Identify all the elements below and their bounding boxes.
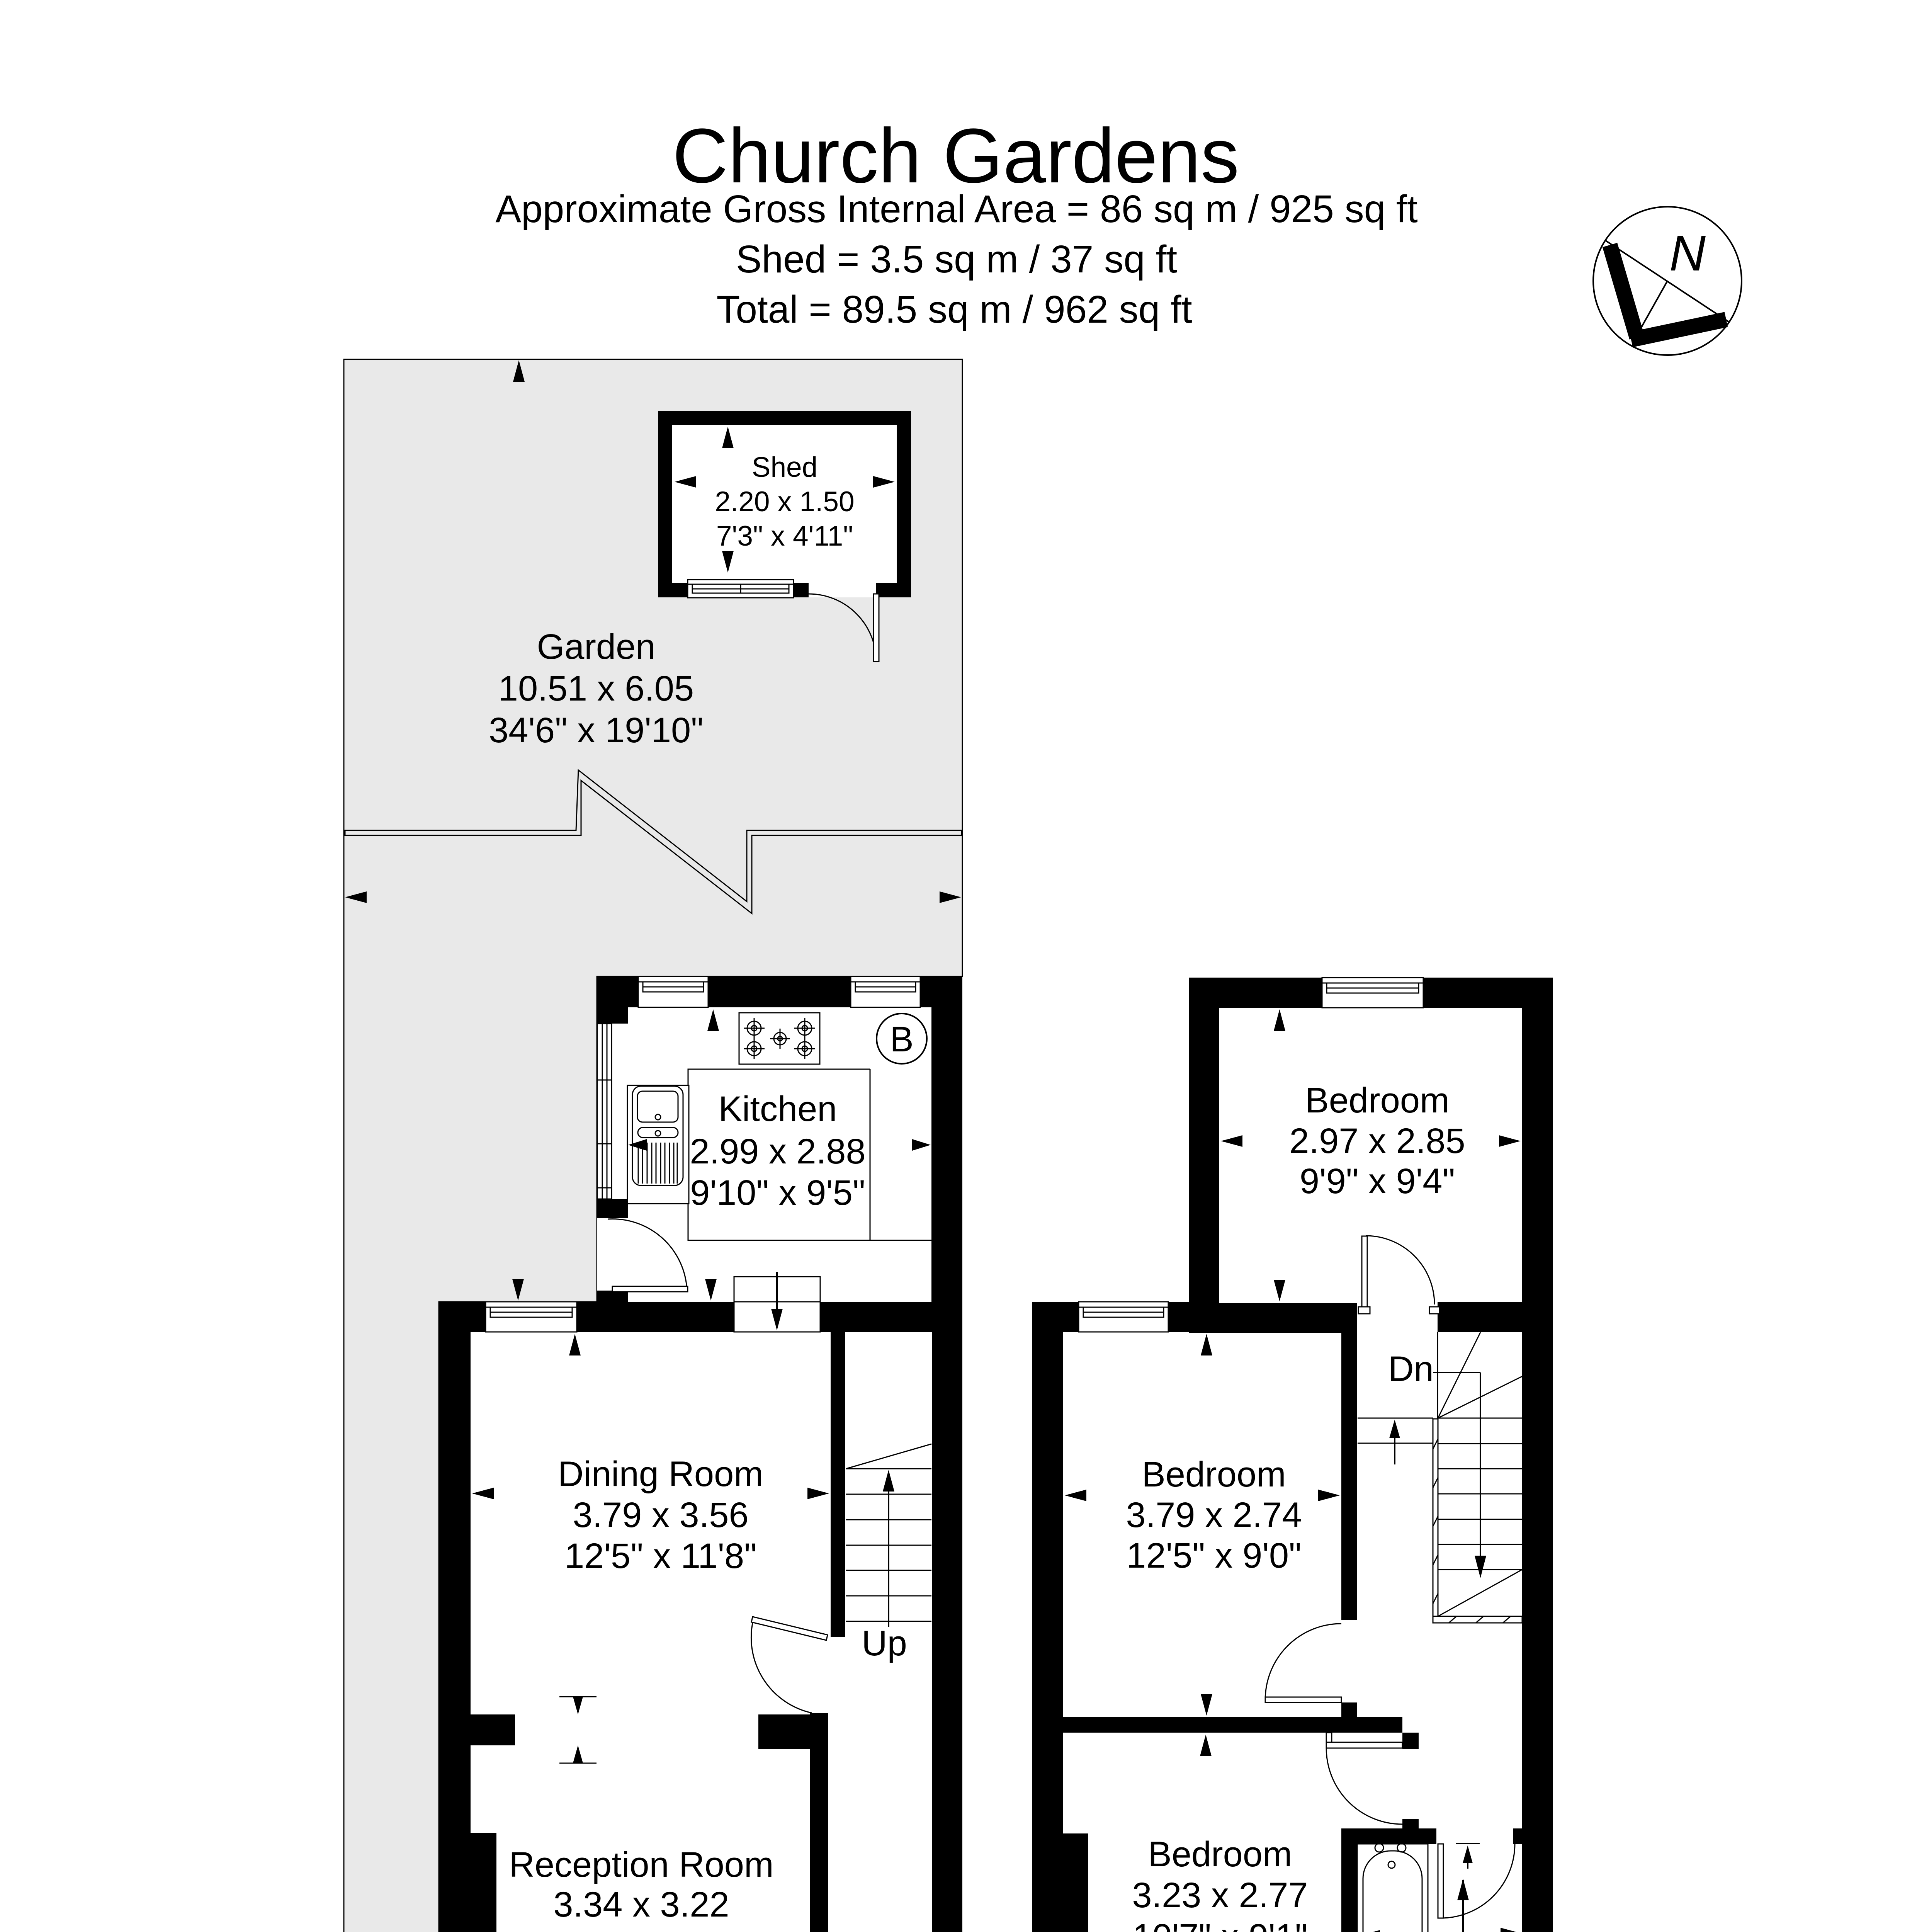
svg-text:2.99 x 2.88: 2.99 x 2.88 [690,1132,865,1171]
svg-text:12'5" x 11'8": 12'5" x 11'8" [564,1536,757,1576]
svg-text:Total = 89.5 sq m / 962 sq ft: Total = 89.5 sq m / 962 sq ft [716,288,1192,331]
svg-text:10.51 x 6.05: 10.51 x 6.05 [498,669,694,708]
svg-text:12'5" x 9'0": 12'5" x 9'0" [1126,1536,1301,1575]
svg-text:Church Gardens: Church Gardens [672,113,1239,199]
svg-text:3.23 x 2.77: 3.23 x 2.77 [1132,1876,1308,1915]
svg-text:B: B [890,1020,913,1059]
svg-text:Dining Room: Dining Room [558,1454,763,1494]
svg-text:Bedroom: Bedroom [1305,1081,1449,1120]
svg-text:3.34 x 3.22: 3.34 x 3.22 [553,1885,729,1924]
svg-text:3.79 x 2.74: 3.79 x 2.74 [1126,1495,1302,1535]
svg-text:10'7" x 9'1": 10'7" x 9'1" [1132,1917,1307,1932]
svg-text:Shed: Shed [752,452,818,483]
svg-text:Reception Room: Reception Room [509,1845,773,1884]
svg-text:Up: Up [862,1624,907,1663]
svg-text:Approximate Gross Internal Are: Approximate Gross Internal Area = 86 sq … [495,187,1418,231]
svg-text:7'3" x 4'11": 7'3" x 4'11" [716,520,853,552]
svg-text:3.79 x 3.56: 3.79 x 3.56 [573,1495,748,1535]
svg-text:2.20 x 1.50: 2.20 x 1.50 [715,486,854,517]
svg-text:9'10" x 9'5": 9'10" x 9'5" [690,1173,865,1213]
svg-text:N: N [1669,225,1706,281]
svg-text:Shed = 3.5 sq m / 37 sq ft: Shed = 3.5 sq m / 37 sq ft [736,238,1178,281]
svg-text:Dn: Dn [1388,1349,1434,1389]
svg-text:10'11" x 10'7": 10'11" x 10'7" [535,1927,748,1932]
svg-text:Bedroom: Bedroom [1148,1835,1292,1874]
svg-text:34'6" x 19'10": 34'6" x 19'10" [489,711,704,750]
svg-text:Kitchen: Kitchen [719,1089,837,1129]
svg-text:Bedroom: Bedroom [1142,1455,1286,1494]
svg-text:9'9" x 9'4": 9'9" x 9'4" [1300,1162,1455,1201]
svg-text:Garden: Garden [537,627,656,667]
svg-text:2.97 x 2.85: 2.97 x 2.85 [1289,1121,1465,1161]
